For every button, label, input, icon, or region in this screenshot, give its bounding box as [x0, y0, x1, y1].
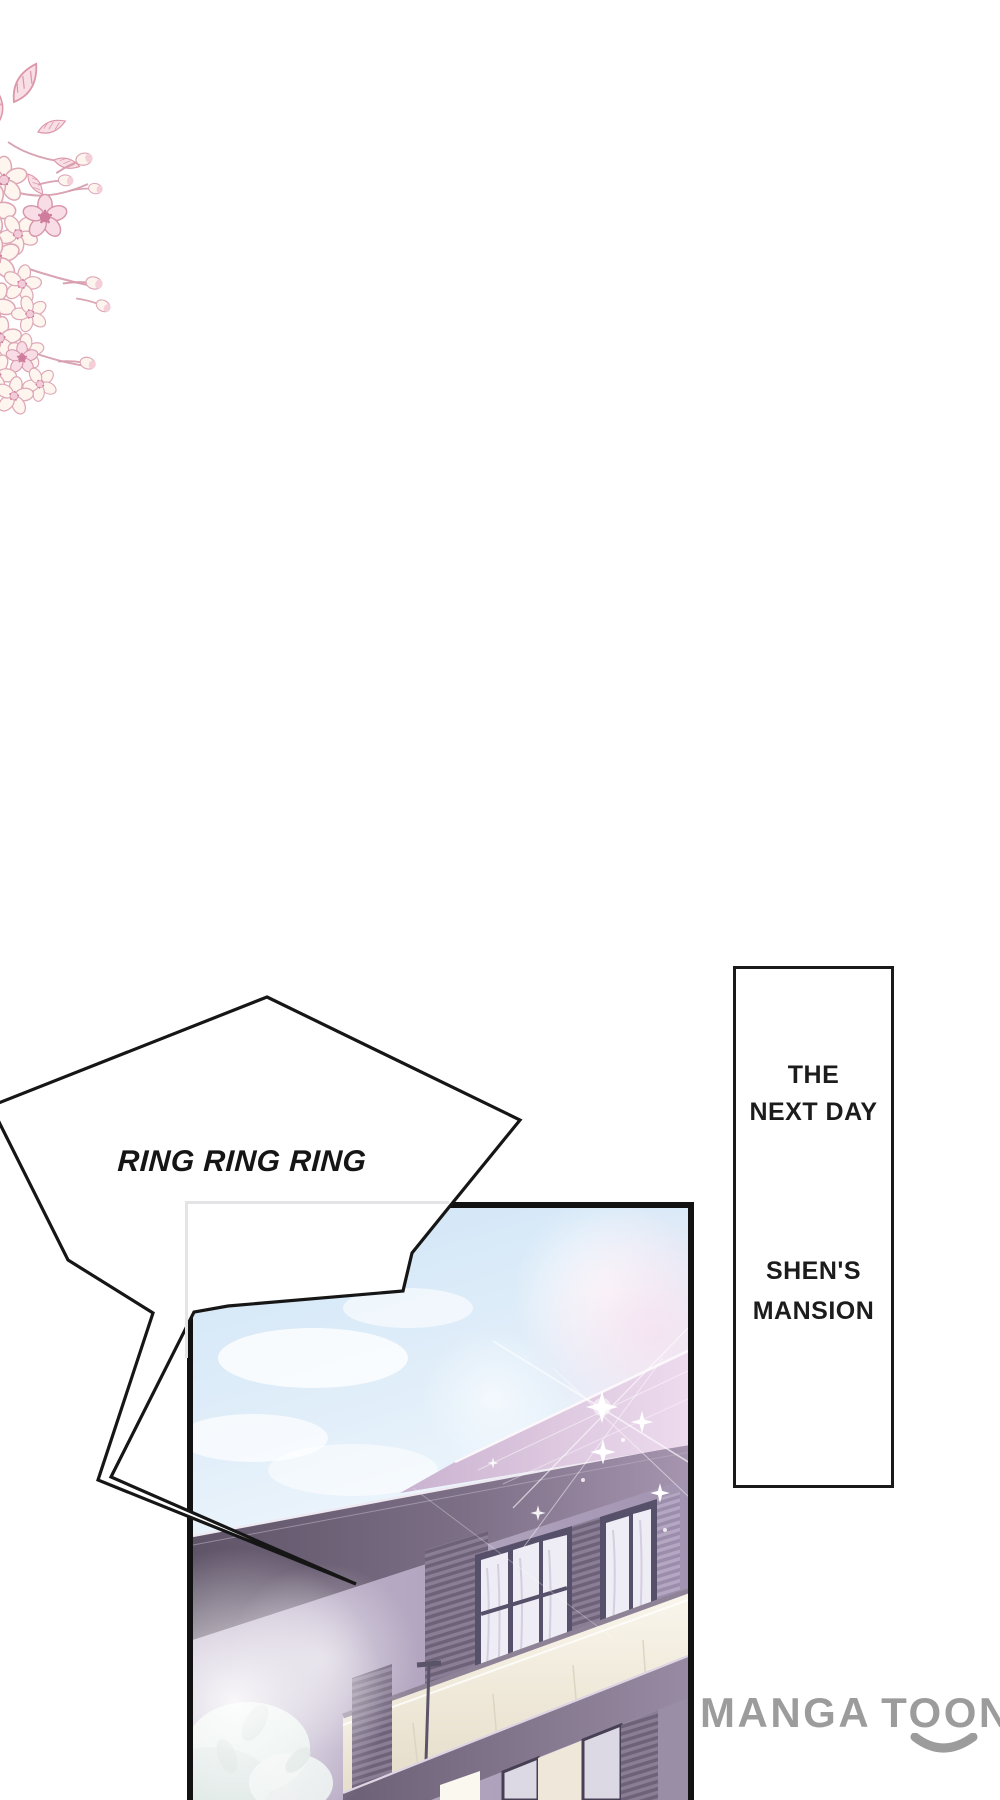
caption-box: THE NEXT DAY SHEN'S MANSION	[733, 966, 894, 1488]
glow	[228, 1563, 418, 1753]
comic-panel	[187, 1202, 694, 1800]
panel-ghost-border-top	[186, 1201, 449, 1204]
lamp-head	[417, 1663, 441, 1665]
watermark-word-toon: TOON	[881, 1689, 1000, 1736]
caption-line: THE	[736, 1057, 891, 1094]
lower-wall	[658, 1698, 688, 1800]
watermark-word-manga: MANGA	[700, 1689, 871, 1736]
cloud	[343, 1288, 473, 1328]
lower-brick-pier	[621, 1710, 658, 1800]
watermark-smile-icon	[910, 1733, 980, 1759]
cherry-blossom-illustration	[0, 52, 138, 417]
cloud	[218, 1328, 408, 1388]
blossom-branches	[0, 62, 112, 417]
caption-bottom: SHEN'S MANSION	[736, 1251, 891, 1331]
caption-line: SHEN'S	[736, 1251, 891, 1291]
mangatoon-watermark: MANGATOON	[700, 1689, 1000, 1759]
sfx-label: RING RING RING	[117, 1145, 367, 1178]
caption-line: MANSION	[736, 1291, 891, 1331]
caption-top: THE NEXT DAY	[736, 1057, 891, 1131]
lower-window	[583, 1725, 621, 1800]
caption-line: NEXT DAY	[736, 1094, 891, 1131]
panel-ghost-border-left	[185, 1201, 188, 1358]
manga-page: RING RING RING THE NEXT DAY SHEN'S MANSI…	[0, 0, 1000, 1800]
mansion-scene	[193, 1208, 688, 1800]
sfx-text: RING RING RING	[107, 1144, 377, 1180]
